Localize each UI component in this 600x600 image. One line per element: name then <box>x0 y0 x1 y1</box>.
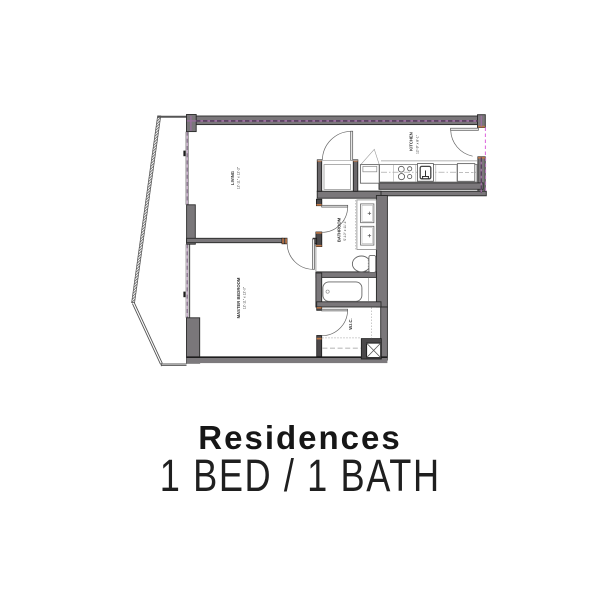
svg-text:5'-10" x 11'-1": 5'-10" x 11'-1" <box>343 219 347 240</box>
svg-text:KITCHEN: KITCHEN <box>409 132 414 151</box>
svg-text:MASTER BEDROOM: MASTER BEDROOM <box>236 277 241 318</box>
svg-text:BATHROOM: BATHROOM <box>337 217 342 242</box>
svg-text:12'-11" x 12'-2": 12'-11" x 12'-2" <box>237 166 241 189</box>
svg-text:12'-11" x 12'-0": 12'-11" x 12'-0" <box>243 286 247 309</box>
svg-text:12'-9" x 8'-1": 12'-9" x 8'-1" <box>415 134 419 154</box>
svg-text:W.I.C.: W.I.C. <box>348 318 353 329</box>
svg-text:LIVING: LIVING <box>230 171 235 185</box>
